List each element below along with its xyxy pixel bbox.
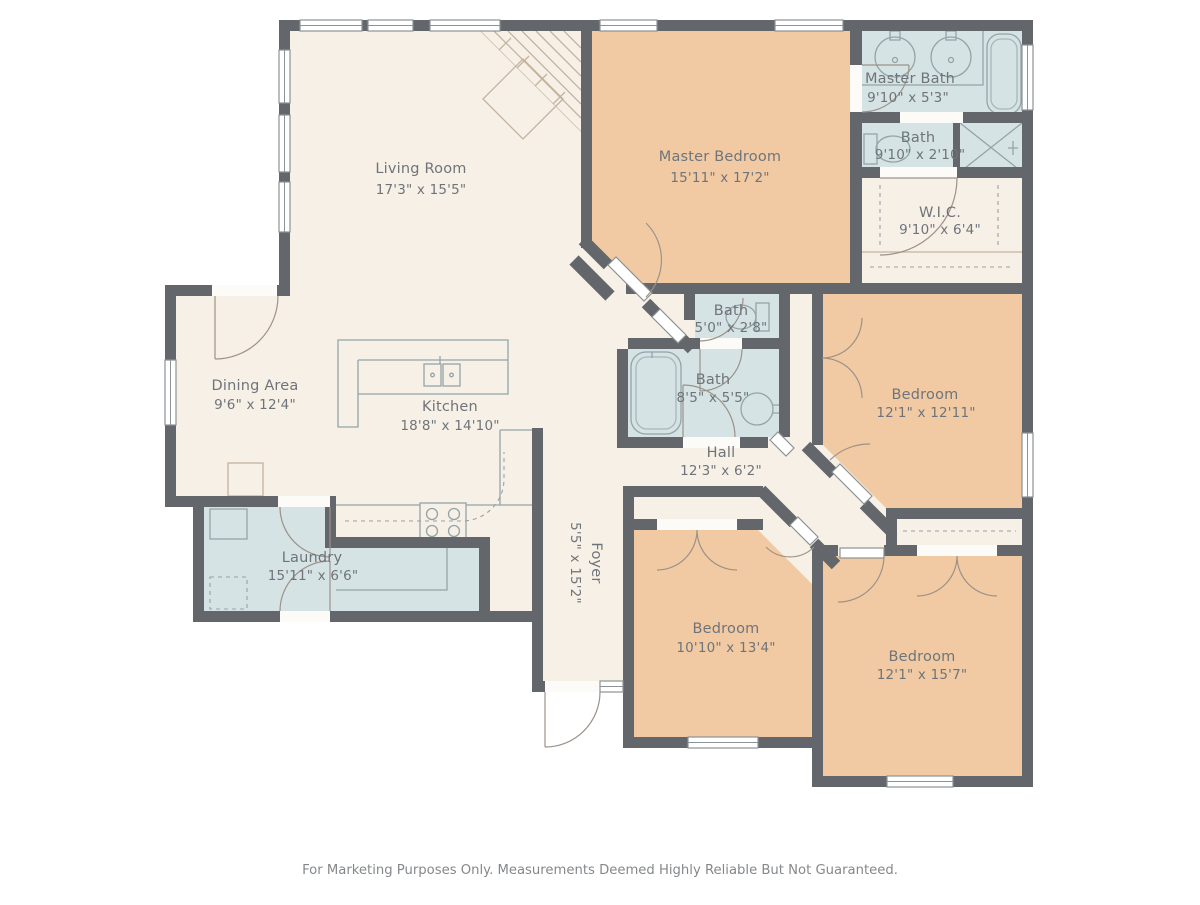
room-label: Master Bedroom [659,149,782,165]
room-dims: 10'10" x 13'4" [676,640,775,656]
room-label: Dining Area [212,378,299,394]
room-dims: 15'11" x 6'6" [268,568,359,584]
room-label: Master Bath [865,71,955,87]
room-dims: 8'5" x 5'5" [677,390,750,406]
floor-plan-page: Living Room 17'3" x 15'5" Master Bedroom… [0,0,1200,900]
room-dims: 9'10" x 2'10" [875,147,966,163]
room-dims: 9'6" x 12'4" [214,397,296,413]
room-dims: 12'1" x 12'11" [876,405,975,421]
room-dims: 5'0" x 2'8" [695,320,768,336]
room-label: Bath [696,372,731,388]
room-label: Laundry [282,550,343,566]
room-label: Kitchen [422,399,478,415]
room-label: Bath [901,130,936,146]
room-label: Bedroom [693,621,760,637]
room-bedroom-bottom [823,556,1022,776]
room-dims: 12'3" x 6'2" [680,463,762,479]
room-dims: 15'11" x 17'2" [670,170,769,186]
room-label: W.I.C. [919,205,961,221]
room-label: Foyer [588,542,604,583]
room-dims: 9'10" x 6'4" [899,222,981,238]
room-label: Living Room [375,161,466,177]
room-dims: 12'1" x 15'7" [877,667,968,683]
disclaimer-text: For Marketing Purposes Only. Measurement… [302,863,898,878]
room-dims: 5'5" x 15'2" [567,522,583,604]
room-dims: 18'8" x 14'10" [400,418,499,434]
room-label: Bedroom [889,649,956,665]
room-label: Hall [707,445,736,461]
floor-plan: Living Room 17'3" x 15'5" Master Bedroom… [0,0,1200,900]
room-label: Bedroom [892,387,959,403]
room-dims: 9'10" x 5'3" [867,90,949,106]
room-dims: 17'3" x 15'5" [376,182,467,198]
room-label: Bath [714,303,749,319]
